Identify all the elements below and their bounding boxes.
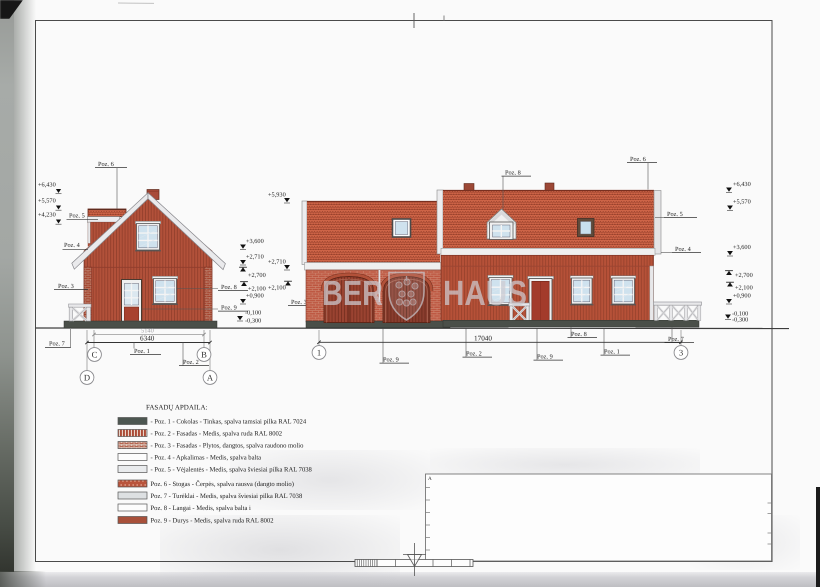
svg-text:Poz. 3: Poz. 3: [291, 299, 307, 306]
svg-text:BER: BER: [322, 274, 383, 313]
svg-text:+2,700: +2,700: [735, 272, 753, 279]
svg-text:Poz. 1: Poz. 1: [134, 348, 150, 355]
svg-text:Poz. 4: Poz. 4: [675, 246, 692, 253]
svg-text:Poz. 2: Poz. 2: [466, 351, 482, 358]
svg-text:- Poz. 4 - Apkalimas - Medis,: - Poz. 4 - Apkalimas - Medis, spalva bal…: [151, 455, 262, 462]
svg-text:+2,710: +2,710: [268, 259, 286, 266]
svg-text:+3,600: +3,600: [733, 244, 751, 251]
svg-text:5140: 5140: [141, 328, 154, 335]
svg-text:+4,230: +4,230: [38, 212, 56, 219]
svg-text:Poz. 6: Poz. 6: [98, 161, 114, 168]
svg-text:Poz. 3: Poz. 3: [58, 283, 74, 290]
svg-text:-0,300: -0,300: [732, 317, 748, 324]
svg-text:+2,100: +2,100: [248, 286, 266, 293]
svg-text:Poz. 4: Poz. 4: [64, 242, 81, 249]
svg-text:- Poz. 2 - Fasadas - Medis, sp: - Poz. 2 - Fasadas - Medis, spalva ruda …: [151, 431, 283, 438]
svg-text:Poz. 9 - Durys - Medis, spalva: Poz. 9 - Durys - Medis, spalva ruda RAL …: [151, 518, 274, 525]
svg-text:+2,710: +2,710: [246, 254, 264, 261]
svg-text:3: 3: [679, 348, 683, 358]
svg-text:Poz. 2: Poz. 2: [183, 359, 199, 366]
svg-text:A: A: [207, 373, 214, 383]
svg-text:-0,300: -0,300: [245, 318, 261, 325]
svg-text:+0,900: +0,900: [733, 293, 751, 300]
svg-text:HAUS: HAUS: [443, 274, 527, 313]
svg-text:A: A: [428, 476, 432, 482]
svg-text:+6,430: +6,430: [38, 182, 56, 189]
svg-text:+5,570: +5,570: [38, 198, 56, 205]
svg-text:Poz. 8 - Langai - Medis, spalv: Poz. 8 - Langai - Medis, spalva balta i: [151, 505, 252, 512]
svg-text:C: C: [92, 350, 98, 360]
svg-text:- Poz. 5 - Vėjalentės - Medis,: - Poz. 5 - Vėjalentės - Medis, spalva šv…: [151, 467, 313, 474]
svg-text:+6,430: +6,430: [733, 181, 751, 188]
svg-text:D: D: [84, 373, 90, 383]
svg-text:- Poz. 1 - Cokolas - Tinkas, s: - Poz. 1 - Cokolas - Tinkas, spalva tams…: [151, 419, 307, 426]
svg-text:- Poz. 3 - Fasadas - Plytos, d: - Poz. 3 - Fasadas - Plytos, dangtos, sp…: [151, 443, 305, 450]
svg-text:FASADŲ APDAILA:: FASADŲ APDAILA:: [146, 404, 208, 412]
svg-text:17040: 17040: [474, 335, 492, 343]
svg-text:B: B: [201, 350, 207, 360]
svg-text:Poz. 8: Poz. 8: [571, 331, 587, 338]
svg-text:+2,100: +2,100: [735, 285, 753, 292]
svg-text:1: 1: [317, 348, 321, 358]
svg-text:Poz. 9: Poz. 9: [537, 354, 553, 361]
svg-text:Poz. 9: Poz. 9: [221, 305, 237, 312]
svg-text:Poz. 5: Poz. 5: [667, 211, 683, 218]
svg-text:Poz. 1: Poz. 1: [604, 349, 620, 356]
svg-text:+2,100: +2,100: [268, 285, 286, 292]
svg-text:+5,570: +5,570: [733, 199, 751, 206]
svg-text:+5,930: +5,930: [268, 192, 286, 199]
svg-text:Poz. 9: Poz. 9: [383, 357, 399, 364]
svg-text:Poz. 6 - Stogas - Čerpės, spal: Poz. 6 - Stogas - Čerpės, spalva rausva …: [151, 480, 294, 488]
svg-text:Poz. 6: Poz. 6: [630, 156, 646, 163]
svg-text:+3,600: +3,600: [246, 238, 264, 245]
svg-text:Poz. 7 - Turėklai - Medis, spa: Poz. 7 - Turėklai - Medis, spalva šviesi…: [151, 493, 303, 500]
svg-text:Poz. 8: Poz. 8: [221, 284, 237, 291]
svg-text:Poz. 5: Poz. 5: [69, 213, 85, 220]
svg-text:-0,100: -0,100: [245, 310, 261, 317]
svg-text:+0,900: +0,900: [246, 293, 264, 300]
svg-text:Poz. 8: Poz. 8: [505, 170, 521, 177]
svg-text:6340: 6340: [140, 335, 155, 343]
svg-text:+2,700: +2,700: [248, 272, 266, 279]
svg-text:Poz. 7: Poz. 7: [49, 341, 65, 348]
